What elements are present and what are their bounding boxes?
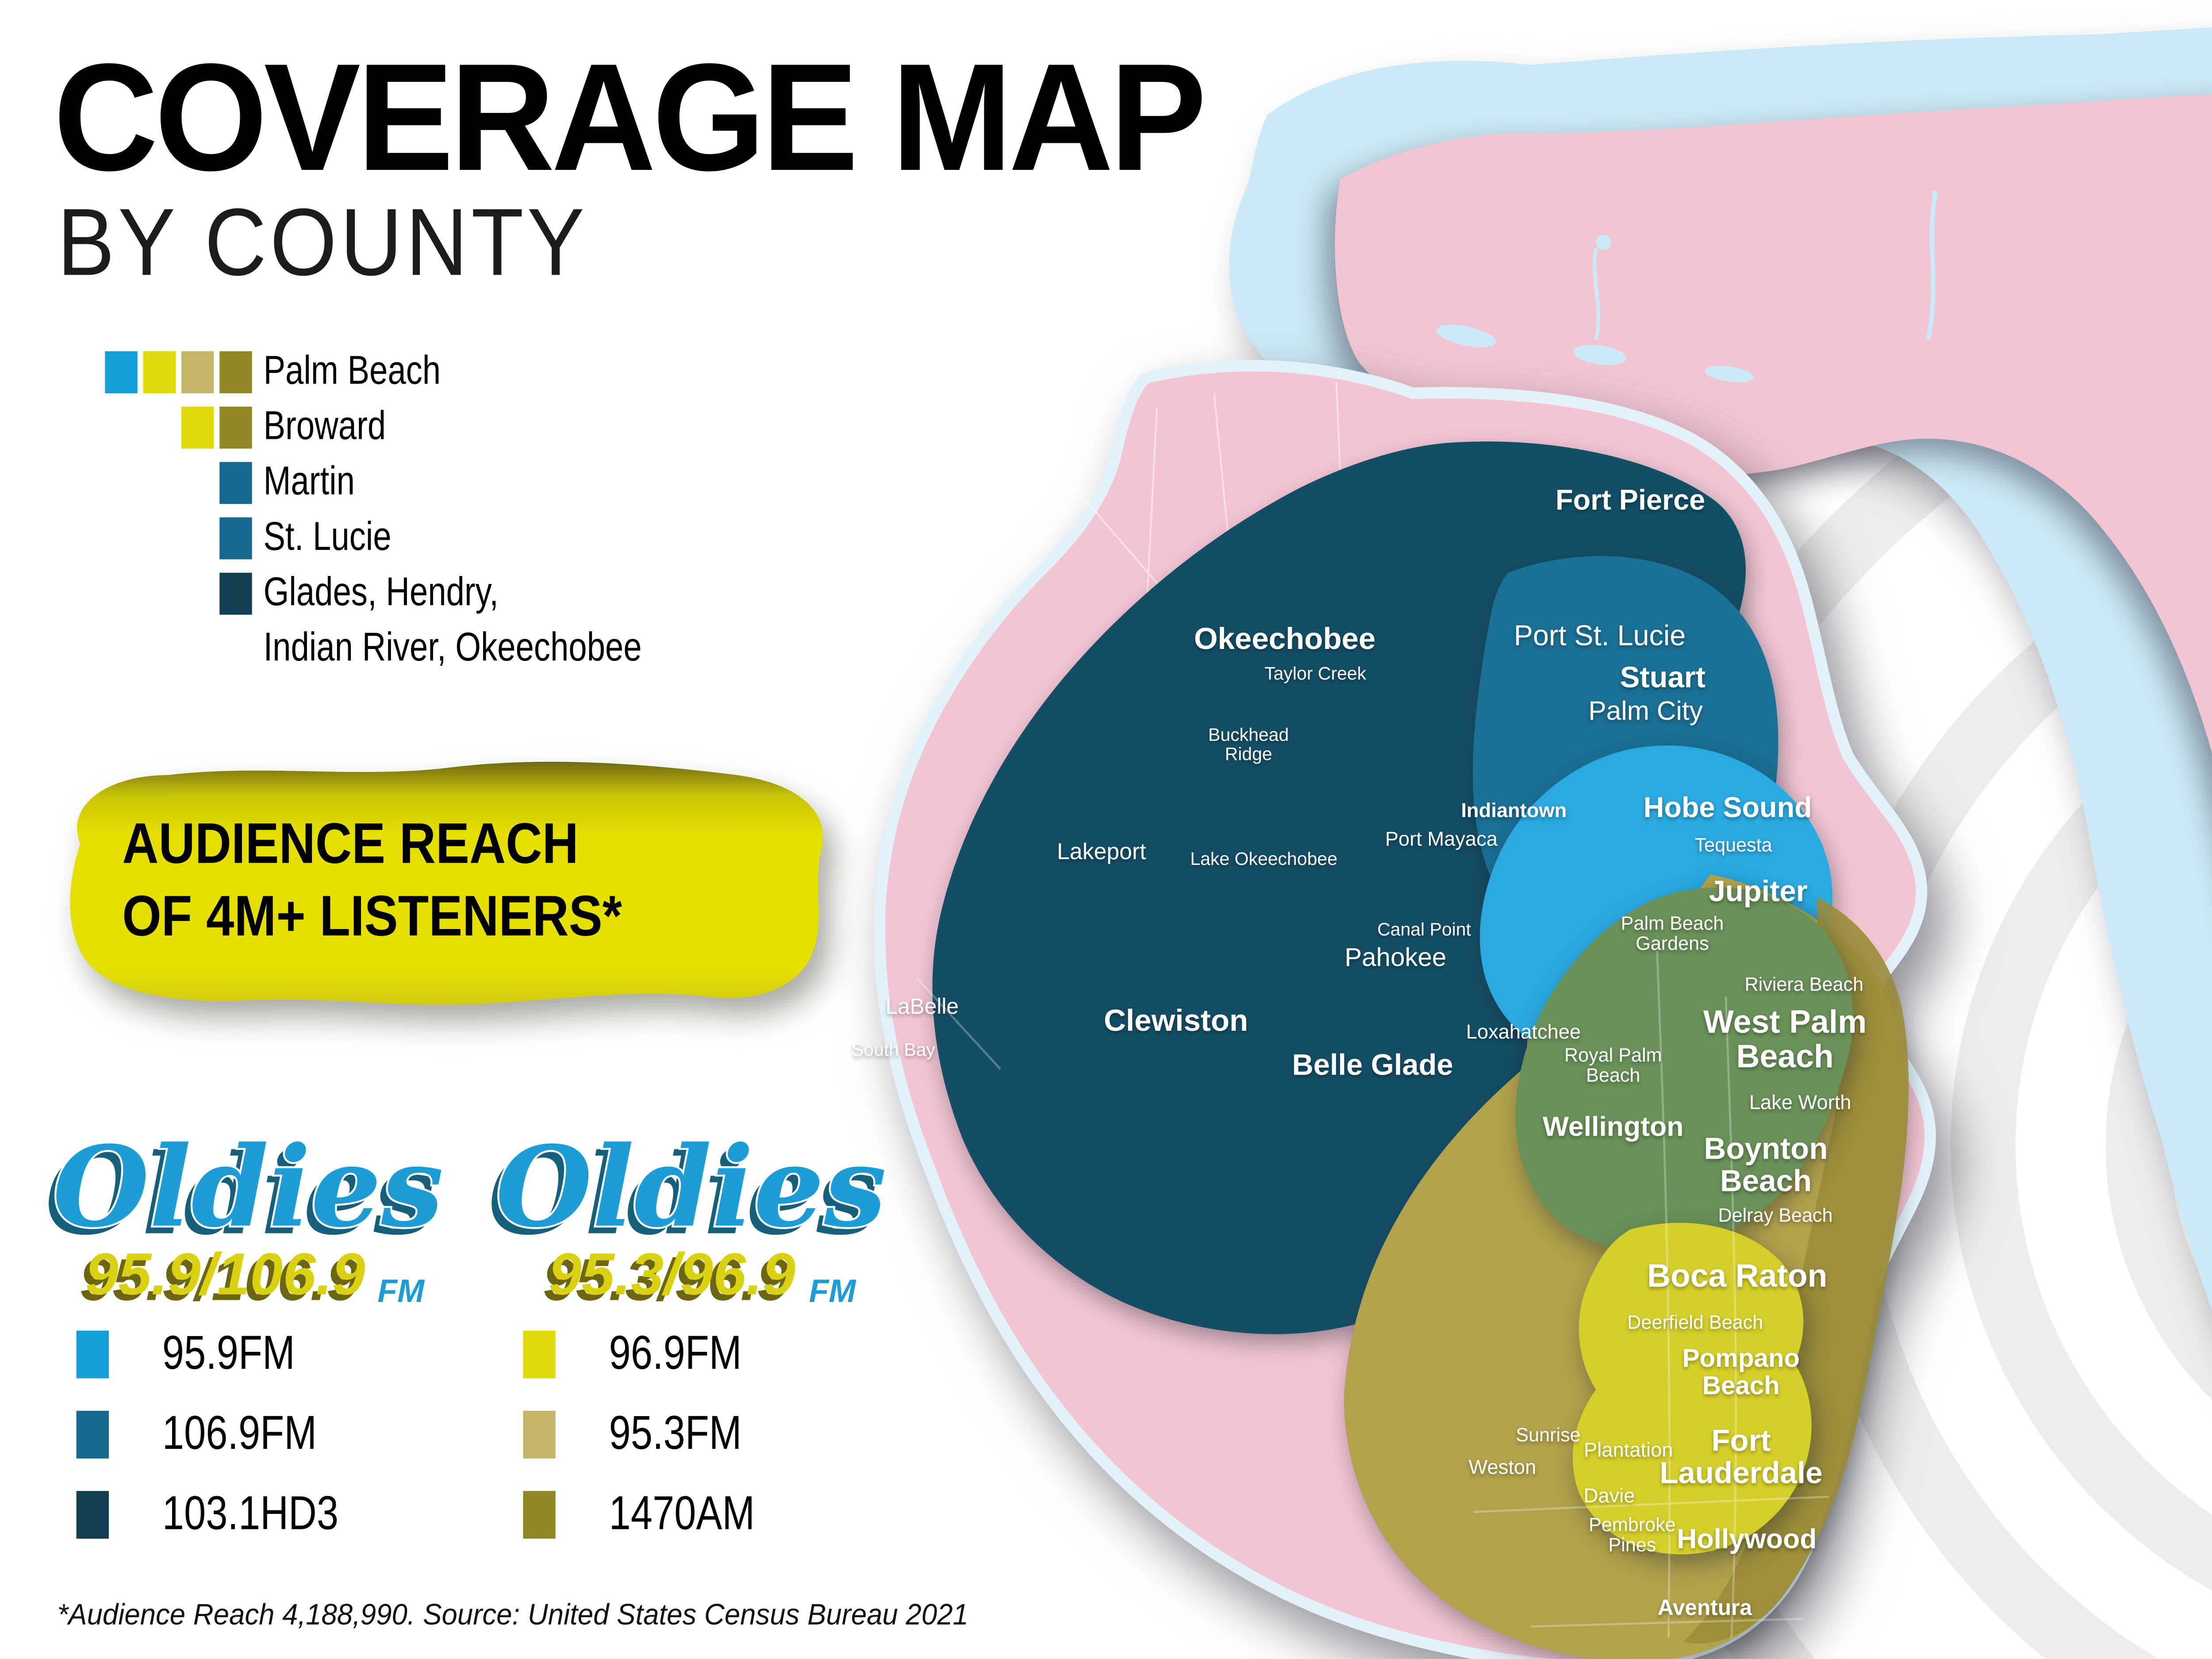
city-label: Okeechobee: [1194, 621, 1376, 656]
dark_103_1-swatch: [219, 572, 252, 614]
county-legend-row: Glades, Hendry,: [50, 565, 851, 620]
city-label: Pahokee: [1344, 943, 1446, 972]
county-name: Palm Beach: [263, 349, 480, 395]
station-label: 95.3FM: [609, 1406, 771, 1461]
yellow_96_9-swatch: [181, 406, 214, 448]
county-name: Broward: [263, 404, 412, 450]
city-label: Sunrise: [1516, 1425, 1580, 1446]
city-label: Lakeport: [1057, 838, 1146, 864]
95.9FM-swatch: [77, 1330, 109, 1378]
county-name: St. Lucie: [263, 515, 419, 561]
county-legend-row: St. Lucie: [50, 510, 851, 565]
yellow_96_9-swatch: [143, 350, 176, 392]
city-label: Stuart: [1620, 661, 1705, 694]
city-label: Fort Pierce: [1555, 484, 1705, 516]
audience-reach-badge: AUDIENCE REACH OF 4M+ LISTENERS*: [15, 745, 856, 1023]
city-label: Palm City: [1588, 695, 1703, 726]
station-row: 96.9FM: [523, 1313, 787, 1394]
olive_1470-swatch: [219, 350, 252, 392]
county-legend: Palm BeachBrowardMartinSt. LucieGlades, …: [50, 344, 851, 676]
station-legend-right: 96.9FM95.3FM1470AM: [523, 1313, 787, 1554]
city-label: Lake Worth: [1749, 1091, 1851, 1114]
tan_95_3-swatch: [181, 350, 214, 392]
station-row: 95.3FM: [523, 1394, 787, 1474]
city-label: Canal Point: [1377, 919, 1471, 939]
county-legend-row: Broward: [50, 399, 851, 454]
city-label: Davie: [1584, 1484, 1635, 1507]
blue_95_9-swatch: [105, 350, 137, 392]
city-label: Taylor Creek: [1264, 663, 1367, 684]
svg-text:95.3/96.9: 95.3/96.9: [549, 1241, 795, 1307]
badge-line2: OF 4M+ LISTENERS*: [122, 884, 622, 948]
oldies-959-1069-logo: Oldies Oldies 95.9/106.9 95.9/106.9 FM: [27, 1119, 485, 1329]
city-label: Port St. Lucie: [1514, 619, 1686, 652]
1470AM-swatch: [523, 1490, 555, 1538]
svg-text:95.9/106.9: 95.9/106.9: [85, 1241, 365, 1307]
city-label: Palm BeachGardens: [1621, 913, 1724, 955]
city-label: Riviera Beach: [1745, 974, 1864, 995]
svg-text:Oldies: Oldies: [495, 1122, 886, 1252]
city-label: Wellington: [1543, 1111, 1684, 1142]
city-label: Indiantown: [1461, 799, 1567, 822]
station-row: 106.9FM: [77, 1394, 377, 1474]
station-label: 95.9FM: [162, 1326, 324, 1381]
city-label: Deerfield Beach: [1627, 1312, 1763, 1333]
county-legend-row: Palm Beach: [50, 344, 851, 399]
city-label: BoyntonBeach: [1704, 1131, 1828, 1198]
county-swatches: [50, 406, 252, 448]
city-label: Belle Glade: [1292, 1048, 1453, 1081]
station-row: 103.1HD3: [77, 1474, 377, 1554]
city-label: Jupiter: [1709, 875, 1808, 908]
station-row: 1470AM: [523, 1474, 787, 1554]
county-swatches: [50, 461, 252, 503]
teal_106_9-swatch: [219, 461, 252, 503]
city-label: Aventura: [1658, 1595, 1752, 1620]
city-label: Port Mayaca: [1385, 828, 1498, 850]
city-label: Weston: [1469, 1455, 1536, 1478]
city-label: Clewiston: [1104, 1003, 1248, 1037]
olive_1470-swatch: [219, 406, 252, 448]
city-label: Delray Beach: [1718, 1205, 1833, 1226]
page-title: COVERAGE MAP: [54, 42, 1263, 195]
oldies-953-969-logo: Oldies Oldies 95.3/96.9 95.3/96.9 FM: [481, 1119, 920, 1329]
city-label: Boca Raton: [1647, 1257, 1828, 1294]
svg-text:FM: FM: [377, 1273, 425, 1309]
103.1HD3-swatch: [77, 1490, 109, 1538]
96.9FM-swatch: [523, 1330, 555, 1378]
station-legend-left: 95.9FM106.9FM103.1HD3: [77, 1313, 377, 1554]
city-label: Loxahatchee: [1466, 1020, 1581, 1043]
106.9FM-swatch: [77, 1410, 109, 1458]
county-name: Martin: [263, 459, 375, 505]
svg-text:FM: FM: [809, 1273, 856, 1309]
county-name-line2: Indian River, Okeechobee: [263, 625, 725, 671]
city-label: Tequesta: [1695, 835, 1772, 856]
county-legend-row-cont: Indian River, Okeechobee: [50, 620, 851, 676]
page-subtitle: BY COUNTY: [57, 195, 647, 290]
95.3FM-swatch: [523, 1410, 555, 1458]
county-legend-row: Martin: [50, 454, 851, 510]
svg-text:Oldies: Oldies: [53, 1122, 443, 1252]
station-label: 106.9FM: [162, 1406, 351, 1461]
footnote: *Audience Reach 4,188,990. Source: Unite…: [57, 1600, 1016, 1634]
city-label: Hollywood: [1677, 1524, 1816, 1555]
station-row: 95.9FM: [77, 1313, 377, 1394]
infographic: Fort PierceOkeechobeeTaylor CreekPort St…: [0, 0, 2212, 1659]
county-swatches: [50, 516, 252, 558]
city-label: Lake Okeechobee: [1190, 849, 1337, 869]
county-swatches: [50, 350, 252, 392]
city-label: Hobe Sound: [1644, 791, 1812, 823]
city-label: LaBelle: [885, 994, 959, 1018]
county-swatches: [50, 572, 252, 614]
station-label: 103.1HD3: [162, 1486, 377, 1541]
badge-line1: AUDIENCE REACH: [122, 811, 579, 875]
teal_106_9-swatch: [219, 516, 252, 558]
city-label: South Bay: [852, 1039, 936, 1060]
county-name: Glades, Hendry,: [263, 570, 550, 616]
station-label: 96.9FM: [609, 1326, 771, 1381]
station-label: 1470AM: [609, 1486, 787, 1541]
